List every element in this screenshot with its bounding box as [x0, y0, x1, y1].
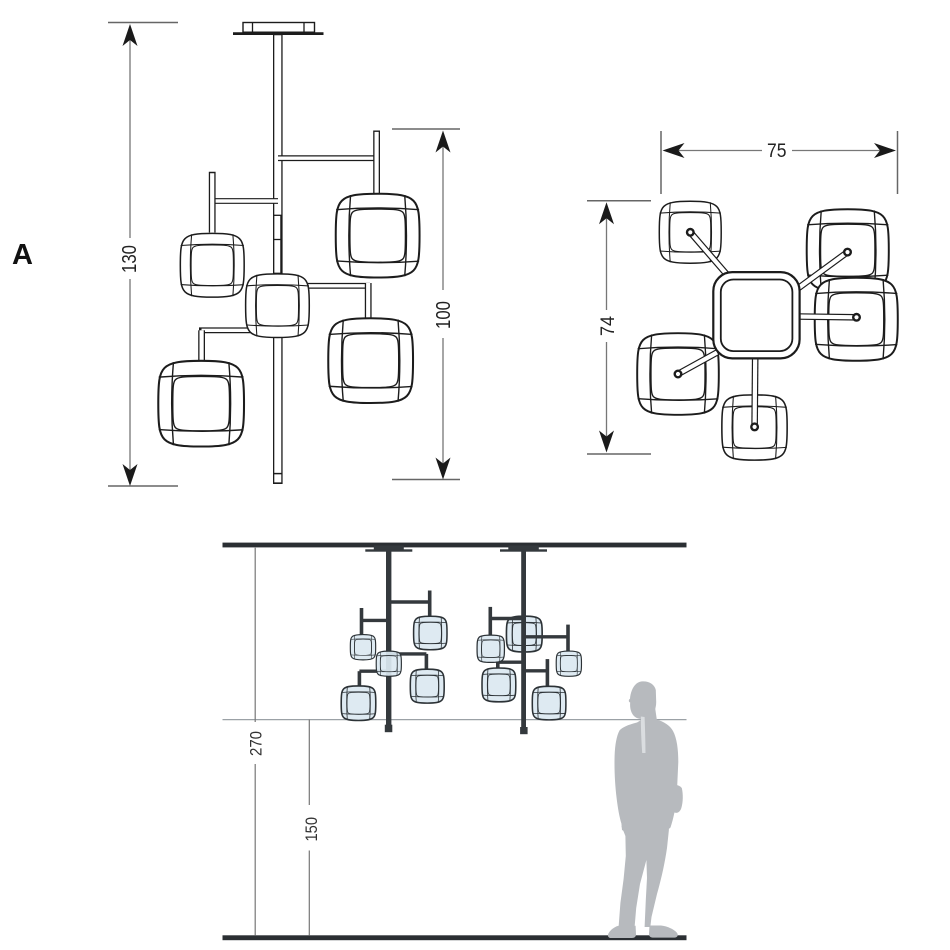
svg-text:75: 75	[767, 141, 787, 162]
svg-text:74: 74	[597, 316, 619, 336]
svg-text:A: A	[12, 239, 33, 271]
svg-text:150: 150	[302, 817, 321, 842]
svg-text:270: 270	[247, 731, 266, 756]
svg-text:130: 130	[119, 245, 141, 273]
svg-text:100: 100	[433, 301, 455, 329]
